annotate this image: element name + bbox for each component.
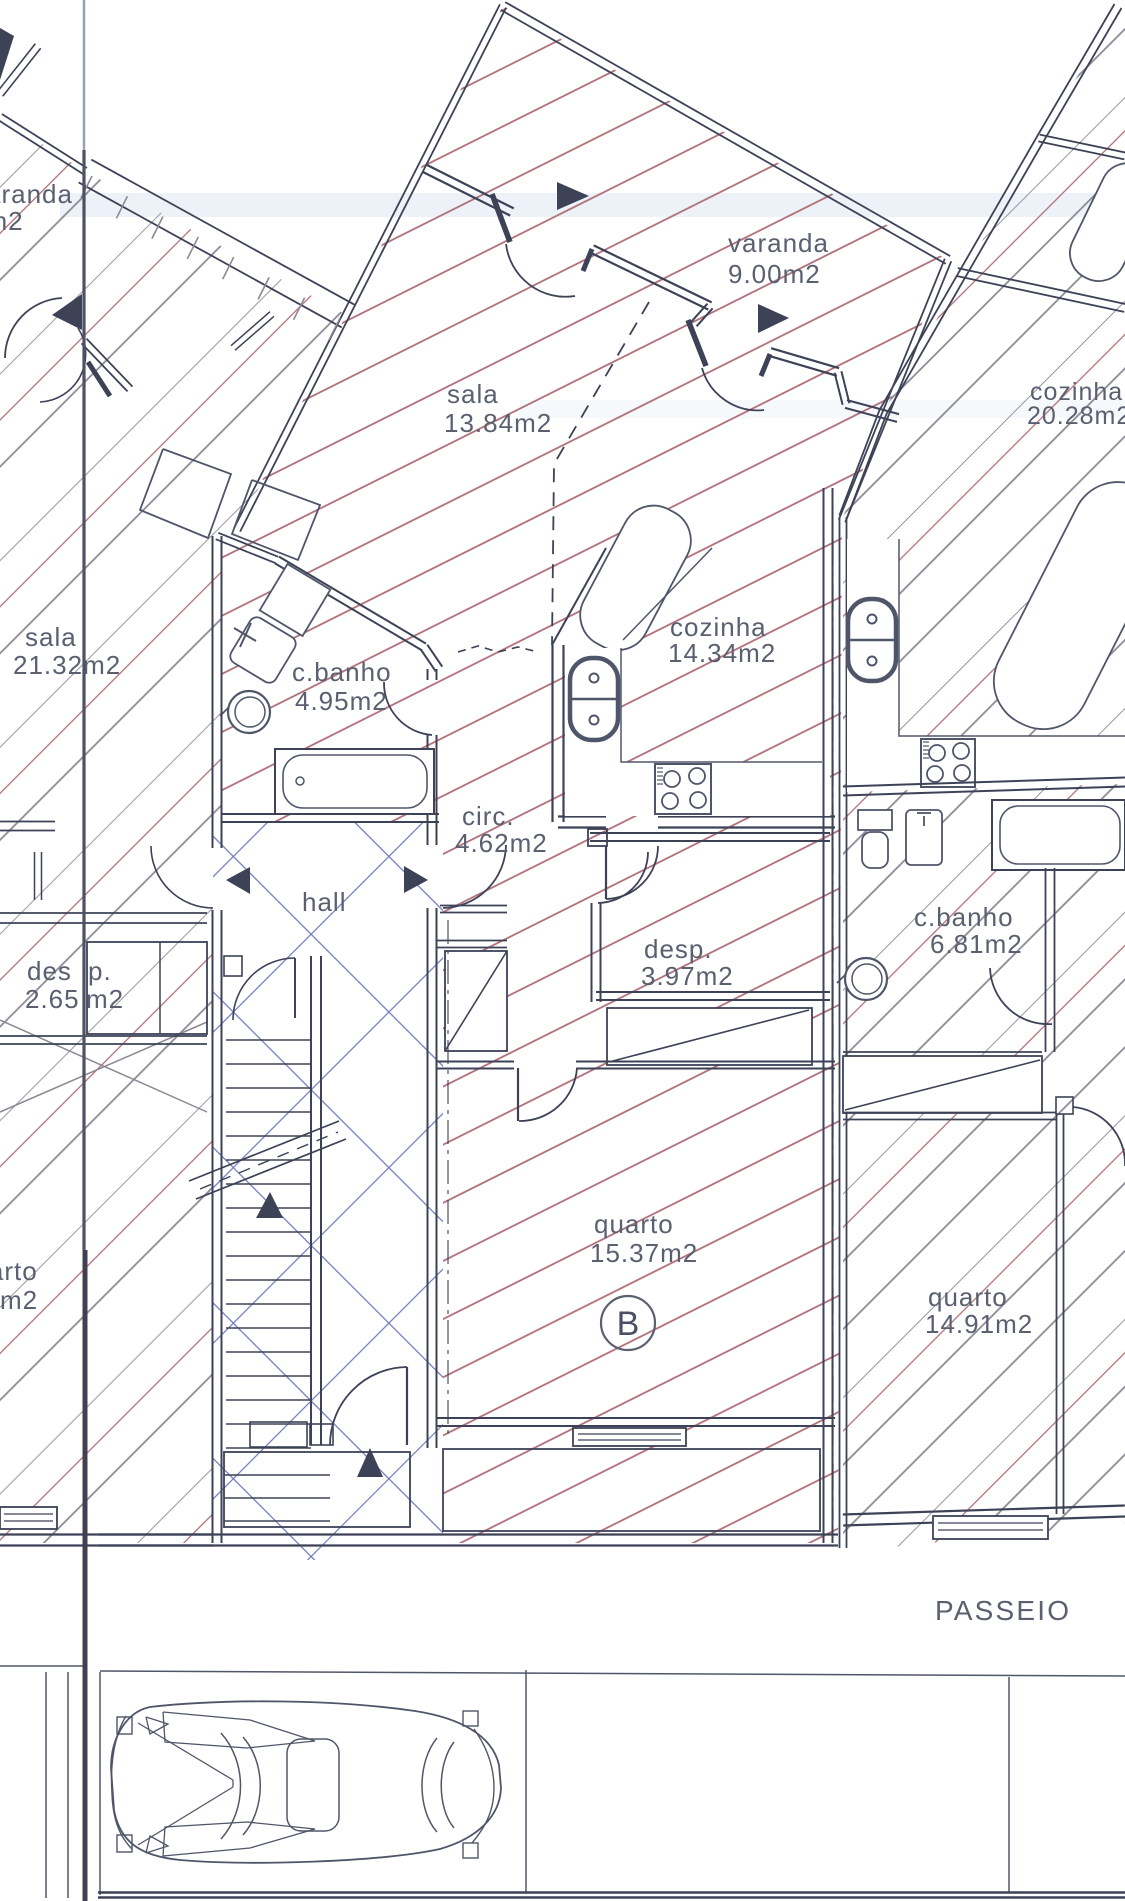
svg-text:p.: p. [88, 956, 112, 986]
svg-text:6m2: 6m2 [0, 206, 24, 236]
svg-text:quarto: quarto [594, 1209, 674, 1239]
svg-text:varanda: varanda [728, 228, 829, 258]
svg-text:21.32m2: 21.32m2 [13, 650, 121, 680]
svg-text:sala: sala [25, 622, 77, 652]
svg-text:20.28m2: 20.28m2 [1027, 402, 1125, 430]
svg-text:B: B [617, 1305, 640, 1343]
svg-text:circ.: circ. [462, 801, 515, 831]
svg-text:6.81m2: 6.81m2 [930, 929, 1023, 959]
svg-text:9.00m2: 9.00m2 [728, 259, 821, 289]
svg-text:4.95m2: 4.95m2 [295, 686, 388, 716]
svg-text:4.62m2: 4.62m2 [455, 828, 548, 858]
svg-text:varanda: varanda [0, 179, 73, 209]
svg-text:14.34m2: 14.34m2 [668, 638, 776, 668]
svg-text:2.65: 2.65 [25, 984, 80, 1014]
svg-text:m2: m2 [0, 1285, 38, 1315]
svg-text:14.91m2: 14.91m2 [925, 1309, 1033, 1339]
svg-text:sala: sala [447, 379, 499, 409]
svg-text:13.84m2: 13.84m2 [444, 408, 552, 438]
svg-text:c.banho: c.banho [292, 657, 392, 687]
svg-text:quarto: quarto [928, 1282, 1008, 1312]
svg-text:hall: hall [302, 887, 346, 917]
svg-text:15.37m2: 15.37m2 [590, 1238, 698, 1268]
svg-text:c.banho: c.banho [914, 902, 1014, 932]
svg-text:quarto: quarto [0, 1256, 38, 1286]
svg-text:des: des [27, 956, 72, 986]
svg-text:desp.: desp. [644, 934, 713, 964]
svg-text:3.97m2: 3.97m2 [641, 961, 734, 991]
svg-text:m2: m2 [86, 984, 124, 1014]
svg-text:PASSEIO: PASSEIO [935, 1595, 1071, 1626]
